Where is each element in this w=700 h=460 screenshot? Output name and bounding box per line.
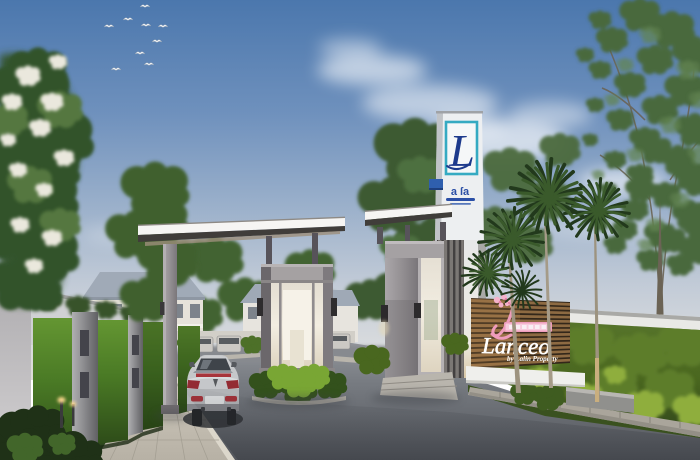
svg-text:a ſa: a ſa: [451, 186, 470, 198]
